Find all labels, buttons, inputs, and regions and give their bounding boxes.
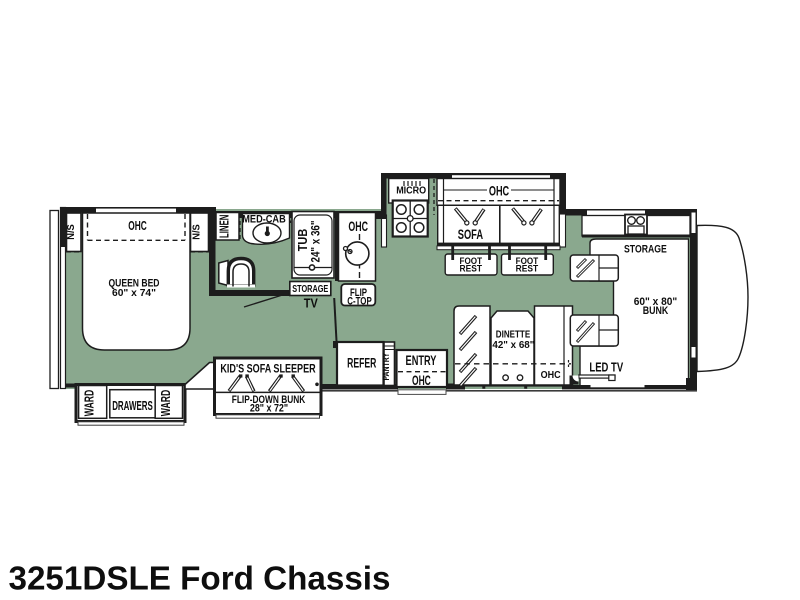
svg-text:DINETTE: DINETTE — [496, 330, 531, 341]
svg-text:WARD: WARD — [159, 390, 173, 417]
svg-text:DRAWERS: DRAWERS — [112, 398, 153, 413]
svg-text:KID'S SOFA SLEEPER: KID'S SOFA SLEEPER — [220, 361, 315, 375]
svg-text:SOFA: SOFA — [458, 226, 483, 242]
svg-text:3251DSLE Ford Chassis: 3251DSLE Ford Chassis — [9, 560, 391, 597]
svg-text:MED-CAB: MED-CAB — [242, 213, 286, 225]
svg-text:LINEN: LINEN — [218, 215, 232, 239]
svg-text:24" x 36": 24" x 36" — [309, 220, 323, 262]
svg-text:REFER: REFER — [347, 356, 376, 371]
svg-text:42" x 68": 42" x 68" — [492, 340, 534, 351]
svg-text:STORAGE: STORAGE — [292, 284, 328, 295]
svg-text:REST: REST — [460, 264, 483, 274]
svg-text:LED TV: LED TV — [589, 359, 623, 374]
svg-text:REST: REST — [516, 264, 539, 274]
svg-text:N/S: N/S — [66, 224, 77, 240]
svg-text:BUNK: BUNK — [643, 305, 669, 317]
svg-text:OHC: OHC — [412, 373, 431, 388]
svg-text:N/S: N/S — [192, 224, 203, 240]
svg-text:OHC: OHC — [489, 183, 509, 199]
svg-text:PANTRY: PANTRY — [381, 353, 391, 381]
svg-text:ENTRY: ENTRY — [406, 353, 437, 368]
svg-text:60" x 74": 60" x 74" — [112, 288, 156, 299]
svg-text:MICRO: MICRO — [396, 186, 426, 197]
svg-text:C-TOP: C-TOP — [347, 296, 372, 308]
svg-text:OHC: OHC — [541, 370, 561, 381]
svg-text:OHC: OHC — [348, 219, 368, 234]
svg-text:28" x 72": 28" x 72" — [250, 403, 288, 415]
svg-text:OHC: OHC — [128, 219, 147, 233]
svg-text:WARD: WARD — [83, 390, 97, 417]
svg-text:TV: TV — [304, 297, 319, 311]
svg-text:STORAGE: STORAGE — [624, 243, 667, 255]
